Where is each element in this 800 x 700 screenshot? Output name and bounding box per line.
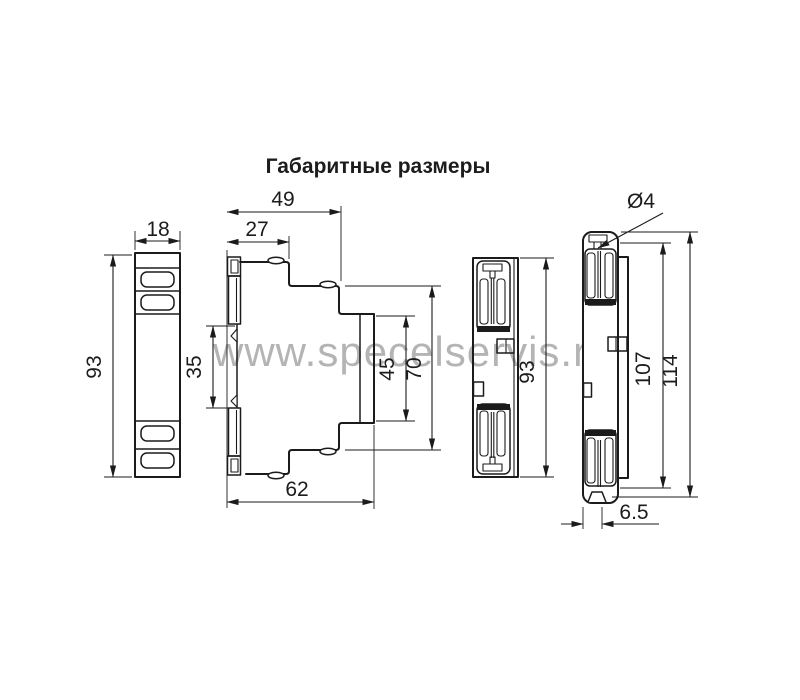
dim-profile-bottom-width: 62	[227, 425, 374, 509]
dim-label-93-rear: 93	[516, 360, 539, 383]
dimensional-drawing: www.specelservis.ru Габаритные размеры 1…	[0, 0, 800, 700]
dim-label-114: 114	[659, 354, 682, 388]
terminal-block-bottom	[477, 404, 510, 474]
dim-edge-bottom-offset: 6.5	[561, 501, 659, 529]
dim-label-70: 70	[403, 357, 426, 380]
drawing-svg: www.specelservis.ru Габаритные размеры 1…	[0, 0, 800, 700]
dim-label-45: 45	[376, 357, 399, 380]
dim-label-107: 107	[632, 351, 655, 386]
dim-label-6-5: 6.5	[619, 501, 648, 524]
dim-label-18: 18	[146, 218, 169, 241]
dim-profile-front-step: 27	[227, 218, 289, 259]
dim-edge-total-height: 114	[612, 232, 698, 497]
page-title: Габаритные размеры	[266, 155, 491, 178]
terminal-block-top	[477, 261, 510, 332]
dim-label-35: 35	[183, 355, 206, 378]
dim-label-93-front: 93	[83, 355, 106, 378]
front-view: 18 93	[83, 218, 180, 477]
dim-profile-top-width: 49	[227, 188, 341, 281]
dim-label-62: 62	[285, 478, 308, 501]
dim-label-d4: Ø4	[627, 190, 655, 213]
dim-label-27: 27	[245, 218, 268, 241]
dim-front-height: 93	[83, 255, 132, 477]
dim-front-width: 18	[135, 218, 180, 250]
dim-label-49: 49	[271, 188, 294, 211]
